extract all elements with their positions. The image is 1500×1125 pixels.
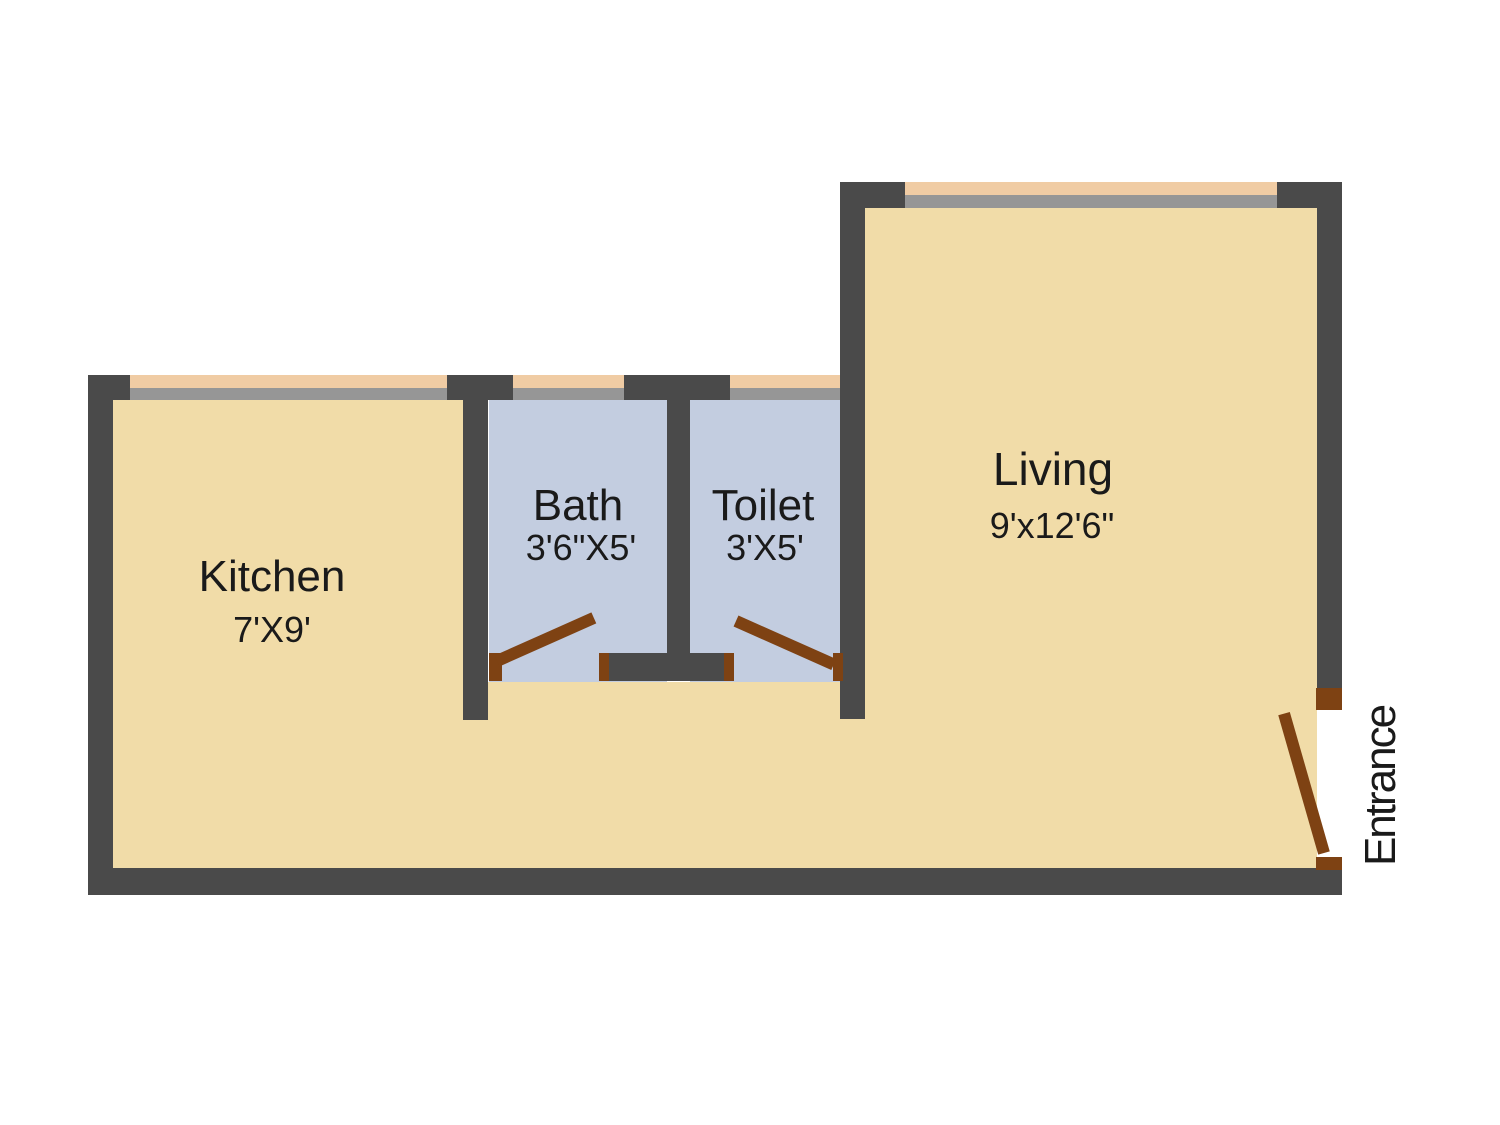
kitchen-label: Kitchen xyxy=(199,555,346,599)
bottom-wall xyxy=(88,868,1342,895)
floor-plan: Kitchen 7'X9' Bath 3'6"X5' Toilet 3'X5' … xyxy=(0,0,1500,1125)
living-label: Living xyxy=(993,446,1113,492)
kitchen-window-glass xyxy=(130,375,447,388)
living-right-wall xyxy=(1317,182,1342,688)
toilet-door-jamb-right xyxy=(833,653,843,681)
wet-rooms-stub-wall xyxy=(609,653,724,681)
toilet-door-jamb-left xyxy=(724,653,734,681)
living-left-wall xyxy=(840,182,865,719)
living-window-glass xyxy=(905,182,1277,195)
bath-window-sill xyxy=(513,388,624,400)
bath-door-jamb-right xyxy=(599,653,609,681)
toilet-window-sill xyxy=(730,388,840,400)
kitchen-bath-wall xyxy=(463,375,488,720)
toilet-dimensions: 3'X5' xyxy=(726,530,804,566)
bath-label: Bath xyxy=(533,484,624,528)
living-window-sill xyxy=(905,195,1277,208)
entrance-label: Entrance xyxy=(1359,706,1403,866)
living-dimensions: 9'x12'6" xyxy=(990,508,1115,544)
bath-toilet-wall xyxy=(667,375,690,681)
bath-window-glass xyxy=(513,375,624,388)
bath-dimensions: 3'6"X5' xyxy=(526,530,637,566)
toilet-label: Toilet xyxy=(712,484,815,528)
left-wall xyxy=(88,375,113,895)
entrance-jamb-bottom xyxy=(1316,857,1342,870)
entrance-jamb-top xyxy=(1316,688,1342,710)
toilet-window-glass xyxy=(730,375,840,388)
kitchen-dimensions: 7'X9' xyxy=(233,612,311,648)
kitchen-window-sill xyxy=(130,388,447,400)
